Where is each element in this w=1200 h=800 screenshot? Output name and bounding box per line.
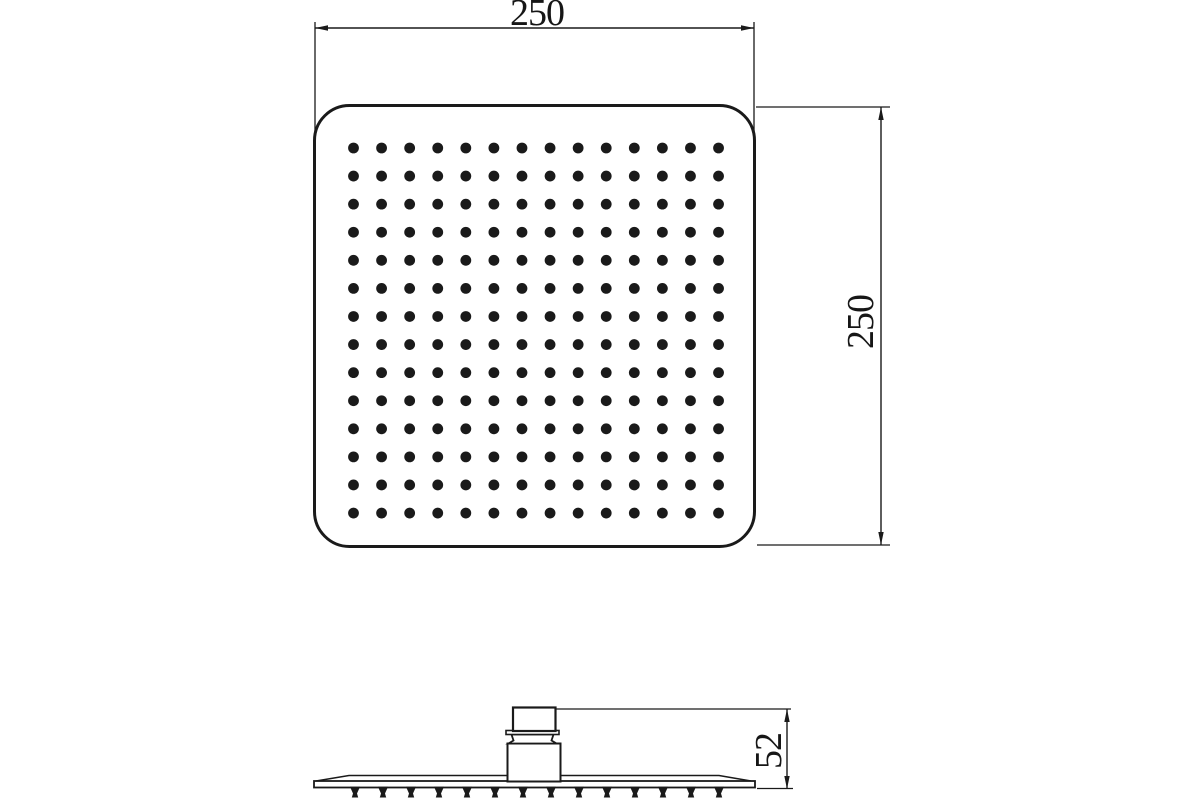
side-nozzle-tooth: [602, 787, 612, 798]
nozzle-dot: [489, 508, 500, 519]
nozzle-dot: [713, 423, 724, 434]
nozzle-dot: [404, 143, 415, 154]
nozzle-dot: [601, 339, 612, 350]
side-nozzle-tooth: [714, 787, 724, 798]
nozzle-dot: [460, 423, 471, 434]
nozzle-dot: [489, 311, 500, 322]
nozzle-dot: [657, 171, 668, 182]
nozzle-dot: [713, 508, 724, 519]
nozzle-dot: [348, 283, 359, 294]
nozzle-dot: [685, 480, 696, 491]
nozzle-dot: [517, 367, 528, 378]
nozzle-dot: [376, 395, 387, 406]
nozzle-dot: [432, 171, 443, 182]
nozzle-dot: [432, 508, 443, 519]
nozzle-dot: [489, 423, 500, 434]
side-nozzle-tooth: [462, 787, 472, 798]
nozzle-dot: [545, 395, 556, 406]
shower-head-technical-drawing: 250 250: [0, 0, 1200, 800]
nozzle-dot: [376, 283, 387, 294]
arrowhead-up-icon: [878, 107, 883, 120]
nozzle-dot: [629, 395, 640, 406]
nozzle-dot: [685, 199, 696, 210]
nozzle-dot: [404, 339, 415, 350]
nozzle-dot: [489, 451, 500, 462]
nozzle-dot: [573, 311, 584, 322]
nozzle-dot: [601, 395, 612, 406]
nozzle-dot: [348, 227, 359, 238]
nozzle-dot: [713, 367, 724, 378]
nozzle-dot: [376, 143, 387, 154]
nozzle-dot: [573, 508, 584, 519]
nozzle-dot: [404, 367, 415, 378]
nozzle-dot: [657, 508, 668, 519]
nozzle-dot: [432, 227, 443, 238]
nozzle-dot: [489, 199, 500, 210]
nozzle-dot: [629, 480, 640, 491]
nozzle-dot: [517, 171, 528, 182]
dimension-side-height: 52: [556, 709, 793, 789]
nozzle-dot: [545, 367, 556, 378]
nozzle-dot: [489, 395, 500, 406]
nozzle-dot: [601, 171, 612, 182]
nozzle-dot: [545, 199, 556, 210]
nozzle-dot: [657, 451, 668, 462]
nozzle-dot: [685, 508, 696, 519]
nozzle-dot: [460, 143, 471, 154]
nozzle-dot: [404, 227, 415, 238]
nozzle-dot: [348, 311, 359, 322]
nozzle-dot: [657, 395, 668, 406]
nozzle-dot: [432, 339, 443, 350]
nozzle-dot: [629, 255, 640, 266]
nozzle-dot: [489, 255, 500, 266]
nozzle-dot: [404, 311, 415, 322]
nozzle-dot: [348, 171, 359, 182]
nozzle-dot: [517, 311, 528, 322]
plan-view: [315, 106, 755, 547]
nozzle-dot: [713, 171, 724, 182]
dimension-right-height: 250: [756, 107, 890, 545]
nozzle-dot: [685, 143, 696, 154]
nozzle-dot: [657, 143, 668, 154]
nozzle-dot: [629, 339, 640, 350]
nozzle-dot: [404, 199, 415, 210]
nozzle-dot: [713, 143, 724, 154]
nozzle-dot: [573, 199, 584, 210]
nozzle-dot: [657, 199, 668, 210]
nozzle-dot: [348, 143, 359, 154]
arrowhead-down-icon: [784, 776, 789, 789]
side-nozzle-tooth: [518, 787, 528, 798]
nozzle-dot: [545, 451, 556, 462]
nozzle-dot: [601, 451, 612, 462]
arrowhead-down-icon: [878, 532, 883, 545]
nozzle-dot: [629, 199, 640, 210]
nozzle-dot: [404, 480, 415, 491]
nozzle-dot: [713, 451, 724, 462]
nozzle-dot: [517, 339, 528, 350]
nozzle-dot: [517, 451, 528, 462]
nozzle-dot: [545, 171, 556, 182]
nozzle-dot: [713, 480, 724, 491]
nozzle-dot: [348, 395, 359, 406]
nozzle-dot: [657, 255, 668, 266]
nozzle-dot: [545, 143, 556, 154]
nozzle-dot: [713, 283, 724, 294]
side-nozzle-tooth: [658, 787, 668, 798]
nozzle-dot: [713, 311, 724, 322]
arrowhead-left-icon: [315, 25, 328, 30]
nozzle-dot: [573, 395, 584, 406]
nozzle-dot: [517, 480, 528, 491]
nozzle-dot: [460, 227, 471, 238]
nozzle-dot: [601, 143, 612, 154]
nozzle-dot: [545, 508, 556, 519]
nozzle-dot: [489, 367, 500, 378]
nozzle-dot: [376, 227, 387, 238]
nozzle-dot: [601, 283, 612, 294]
nozzle-dot: [685, 227, 696, 238]
nozzle-dot: [629, 451, 640, 462]
nozzle-dot: [376, 311, 387, 322]
nozzle-dot: [657, 283, 668, 294]
nozzle-dot: [629, 508, 640, 519]
nozzle-dot: [460, 283, 471, 294]
nozzle-dot: [489, 227, 500, 238]
nozzle-dot: [517, 143, 528, 154]
nozzle-dot: [404, 423, 415, 434]
nozzle-dot: [489, 480, 500, 491]
nozzle-dot: [545, 255, 556, 266]
technical-drawing-page: 250 250: [0, 0, 1200, 800]
nozzle-dot: [545, 423, 556, 434]
nozzle-dot: [657, 227, 668, 238]
nozzle-dot: [629, 227, 640, 238]
nozzle-dot: [460, 311, 471, 322]
side-nozzle-tooth: [350, 787, 360, 798]
nozzle-dot: [573, 451, 584, 462]
nozzle-dot: [432, 423, 443, 434]
nozzle-dot: [657, 480, 668, 491]
nozzle-dot: [601, 508, 612, 519]
nozzle-dot: [545, 227, 556, 238]
side-nozzle-tooth: [686, 787, 696, 798]
nozzle-dot: [432, 255, 443, 266]
nozzle-dot: [517, 395, 528, 406]
nozzle-dot: [713, 255, 724, 266]
water-inlet-stub: [513, 708, 556, 732]
nozzle-dot: [489, 283, 500, 294]
nozzle-dot: [685, 255, 696, 266]
nozzle-dot: [573, 227, 584, 238]
nozzle-dot: [489, 171, 500, 182]
nozzle-dot: [713, 395, 724, 406]
nozzle-dot: [460, 508, 471, 519]
nozzle-dot: [545, 339, 556, 350]
nozzle-dot: [460, 339, 471, 350]
side-nozzle-tooth: [406, 787, 416, 798]
nozzle-dot: [573, 423, 584, 434]
nozzle-dot: [573, 367, 584, 378]
nozzle-dot: [657, 367, 668, 378]
nozzle-dot: [432, 480, 443, 491]
nozzle-dot: [348, 367, 359, 378]
nozzle-dot: [629, 423, 640, 434]
nozzle-dot: [404, 283, 415, 294]
nozzle-dot: [376, 508, 387, 519]
nozzle-dot: [573, 339, 584, 350]
nozzle-dot: [629, 367, 640, 378]
nozzle-dot: [460, 395, 471, 406]
side-nozzle-tooth: [630, 787, 640, 798]
nozzle-dot: [685, 395, 696, 406]
nozzle-dot: [517, 283, 528, 294]
nozzle-dot: [517, 255, 528, 266]
nozzle-dot: [573, 283, 584, 294]
nozzle-dot: [629, 171, 640, 182]
nozzle-dot: [432, 451, 443, 462]
side-nozzle-tooth: [434, 787, 444, 798]
nozzle-dot: [713, 339, 724, 350]
nozzle-dot: [517, 423, 528, 434]
nozzle-dot: [460, 199, 471, 210]
side-view: [314, 708, 755, 798]
connector-neck: [509, 735, 557, 744]
nozzle-dot: [376, 339, 387, 350]
nozzle-dot: [657, 423, 668, 434]
nozzle-dot: [376, 451, 387, 462]
nozzle-dot: [573, 171, 584, 182]
nozzle-dot: [685, 339, 696, 350]
nozzle-dot: [404, 508, 415, 519]
nozzle-dot: [517, 199, 528, 210]
nozzle-dot: [713, 199, 724, 210]
nozzle-dot: [685, 451, 696, 462]
nozzle-dot: [601, 423, 612, 434]
nozzle-dot: [629, 283, 640, 294]
nozzle-dot: [685, 171, 696, 182]
nozzle-dot: [601, 255, 612, 266]
nozzle-dot: [657, 339, 668, 350]
nozzle-dot: [489, 143, 500, 154]
nozzle-dot: [404, 451, 415, 462]
nozzle-dot: [517, 508, 528, 519]
nozzle-dot: [348, 199, 359, 210]
nozzle-dot: [376, 199, 387, 210]
nozzle-dot: [629, 311, 640, 322]
nozzle-dot: [348, 423, 359, 434]
nozzle-dot: [489, 339, 500, 350]
nozzle-dot: [376, 423, 387, 434]
nozzle-dot: [460, 171, 471, 182]
side-nozzle-tooth: [546, 787, 556, 798]
nozzle-dot: [713, 227, 724, 238]
dimension-label-right-height: 250: [840, 295, 882, 349]
nozzle-dot: [685, 367, 696, 378]
nozzle-dot: [460, 451, 471, 462]
nozzle-dot: [517, 227, 528, 238]
side-nozzle-tooth: [378, 787, 388, 798]
side-nozzles: [350, 787, 724, 798]
nozzle-dot: [404, 171, 415, 182]
nozzle-dot: [545, 283, 556, 294]
nozzle-dot: [685, 423, 696, 434]
nozzle-dot: [376, 480, 387, 491]
connector-base: [508, 744, 561, 782]
nozzle-dot: [657, 311, 668, 322]
nozzle-dot: [404, 255, 415, 266]
nozzle-dot: [432, 367, 443, 378]
nozzle-dot: [432, 283, 443, 294]
nozzle-dot: [404, 395, 415, 406]
nozzle-dot: [545, 311, 556, 322]
nozzle-dot: [432, 143, 443, 154]
nozzle-dot: [601, 311, 612, 322]
nozzle-dot: [432, 395, 443, 406]
nozzle-dot: [460, 480, 471, 491]
nozzle-dot: [348, 339, 359, 350]
nozzle-dot: [601, 480, 612, 491]
nozzle-dot: [601, 199, 612, 210]
side-nozzle-tooth: [574, 787, 584, 798]
nozzle-dot: [573, 480, 584, 491]
dimension-label-side-height: 52: [748, 733, 790, 769]
nozzle-dot: [432, 311, 443, 322]
nozzle-dot: [432, 199, 443, 210]
side-nozzle-tooth: [490, 787, 500, 798]
nozzle-dot: [685, 311, 696, 322]
nozzle-dot: [348, 508, 359, 519]
nozzle-dot: [348, 451, 359, 462]
nozzle-dot: [601, 227, 612, 238]
arrowhead-up-icon: [784, 709, 789, 722]
nozzle-dot: [348, 480, 359, 491]
nozzle-dot: [460, 255, 471, 266]
arrowhead-right-icon: [741, 25, 754, 30]
nozzle-dot: [601, 367, 612, 378]
nozzle-dot: [460, 367, 471, 378]
nozzle-dot: [545, 480, 556, 491]
dimension-label-top-width: 250: [510, 0, 564, 34]
nozzle-dot: [376, 367, 387, 378]
nozzle-dot: [629, 143, 640, 154]
nozzle-dot: [376, 255, 387, 266]
nozzle-dot: [573, 255, 584, 266]
nozzle-dot: [348, 255, 359, 266]
nozzle-dot: [376, 171, 387, 182]
nozzle-dot: [685, 283, 696, 294]
nozzle-dot: [573, 143, 584, 154]
